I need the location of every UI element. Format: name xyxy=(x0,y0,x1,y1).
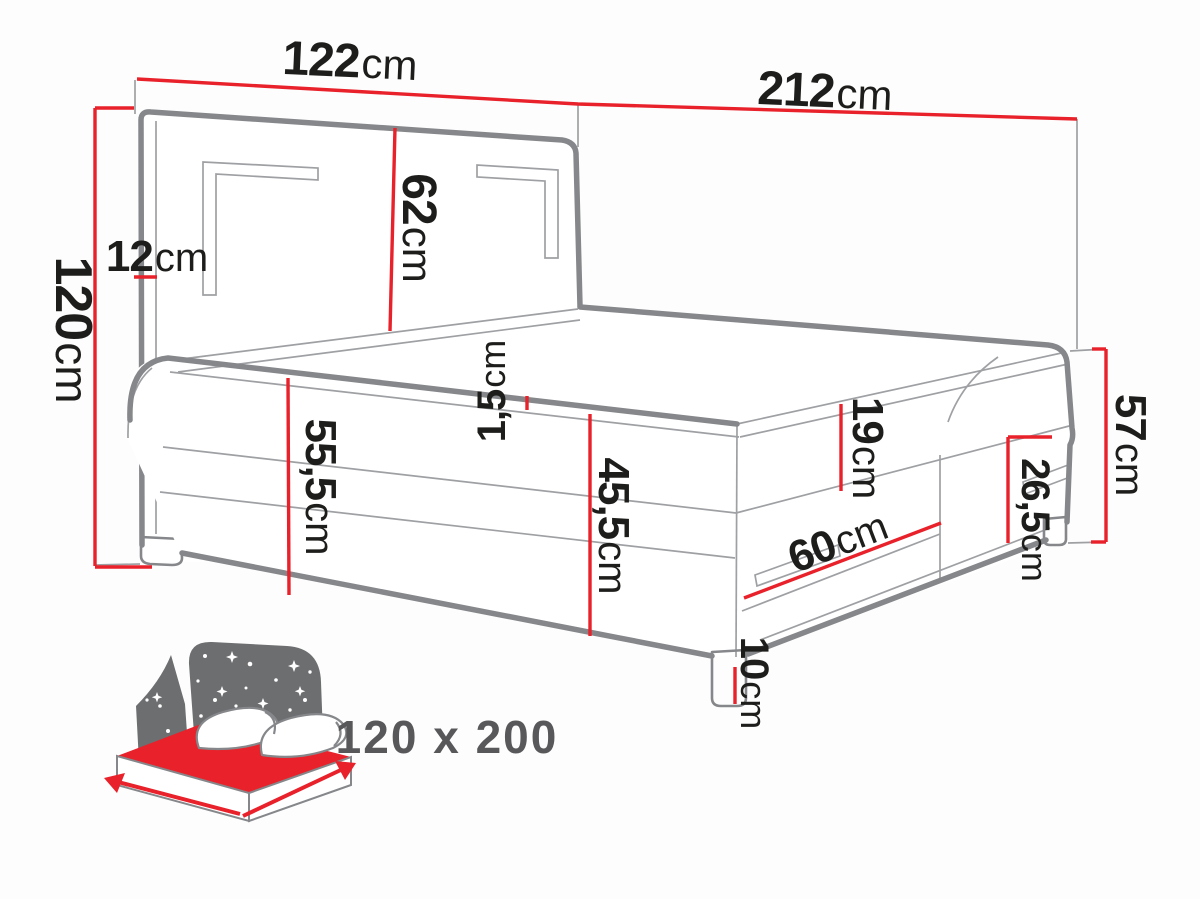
dim-label-leg-height: 10cm xyxy=(734,637,774,730)
dim-label-foot-end-height: 57cm xyxy=(1108,394,1152,496)
dim-label-headboard-width: 122cm xyxy=(281,35,418,89)
dim-label-mattress-height: 19cm xyxy=(845,397,889,499)
icon-pillows xyxy=(197,708,347,757)
dim-label-total-height: 120cm xyxy=(47,256,99,403)
dim-label-headboard-above: 62cm xyxy=(394,173,442,282)
diagram-canvas: 122cm 212cm 12cm 120cm 62cm 1,5cm 55,5cm… xyxy=(0,0,1200,899)
size-badge: 120 x 200 xyxy=(336,710,559,764)
dim-line-side-height xyxy=(288,378,289,595)
dim-label-topper-lip: 1,5cm xyxy=(472,340,512,443)
bed-drawing xyxy=(95,80,1105,706)
bed-line-drawing xyxy=(0,0,1200,899)
dim-label-base-height: 45,5cm xyxy=(591,458,635,595)
bed-size-icon xyxy=(104,642,356,821)
dim-line-headboard-width-and-length xyxy=(137,79,1077,119)
dim-line-foot-end-height xyxy=(1091,349,1106,542)
dim-label-box-height: 26,5cm xyxy=(1015,458,1055,582)
dim-label-headboard-depth: 12cm xyxy=(106,235,208,279)
dim-label-bed-length: 212cm xyxy=(756,65,893,119)
dim-label-side-height: 55,5cm xyxy=(298,419,342,556)
